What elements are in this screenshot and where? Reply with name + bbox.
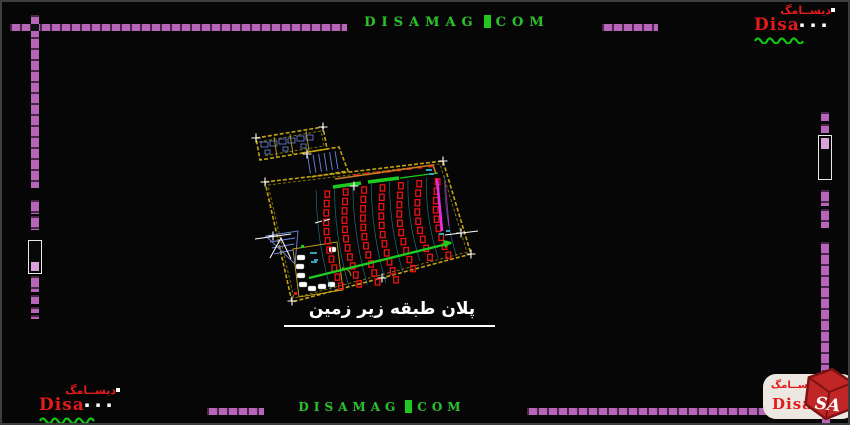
corridor-stairs-group [308,151,338,173]
survey-markers-group [252,123,476,306]
cad-sheet: DISAMAGCOM DISAMAGCOM دیســامگ Disa▪ ▪ ▪… [0,0,850,425]
floorplan-drawing [2,2,850,425]
wc-room-group [293,242,343,297]
annex-fixtures-group [261,135,313,154]
cube-letters: SA [814,393,842,416]
brand-cube-icon[interactable]: SA [800,363,850,425]
